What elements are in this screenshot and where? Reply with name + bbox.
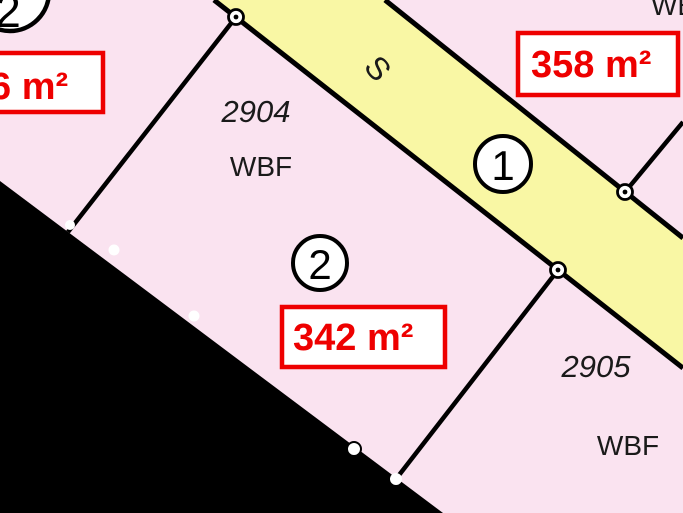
area-label-box-topleft: 6 m² <box>0 53 103 112</box>
boundary-marker <box>109 245 120 256</box>
survey-point <box>229 10 244 25</box>
lot-number-topleft: 2 <box>0 0 21 37</box>
land-use-label-2905: WBF <box>597 430 659 461</box>
survey-point <box>618 185 633 200</box>
parcel-number-2904: 2904 <box>221 94 291 129</box>
land-use-label-topright: WBF <box>651 0 683 21</box>
boundary-marker <box>347 442 361 456</box>
area-value-topleft: 6 m² <box>0 66 68 108</box>
lot-number-center: 2 <box>308 241 331 288</box>
boundary-marker <box>390 473 402 485</box>
cadastral-map: S 1 2 2 2904 WBF 2905 WBF WBF 6 m² 358 m… <box>0 0 683 513</box>
lot-number-road: 1 <box>491 142 514 189</box>
area-value-342: 342 m² <box>293 317 413 359</box>
survey-point <box>551 263 566 278</box>
area-label-box-342: 342 m² <box>282 307 445 367</box>
boundary-marker <box>189 311 200 322</box>
area-value-358: 358 m² <box>531 44 651 86</box>
area-label-box-358: 358 m² <box>518 33 678 95</box>
parcel-number-2905: 2905 <box>561 349 632 384</box>
boundary-marker <box>65 220 75 230</box>
land-use-label-2904: WBF <box>230 151 292 182</box>
